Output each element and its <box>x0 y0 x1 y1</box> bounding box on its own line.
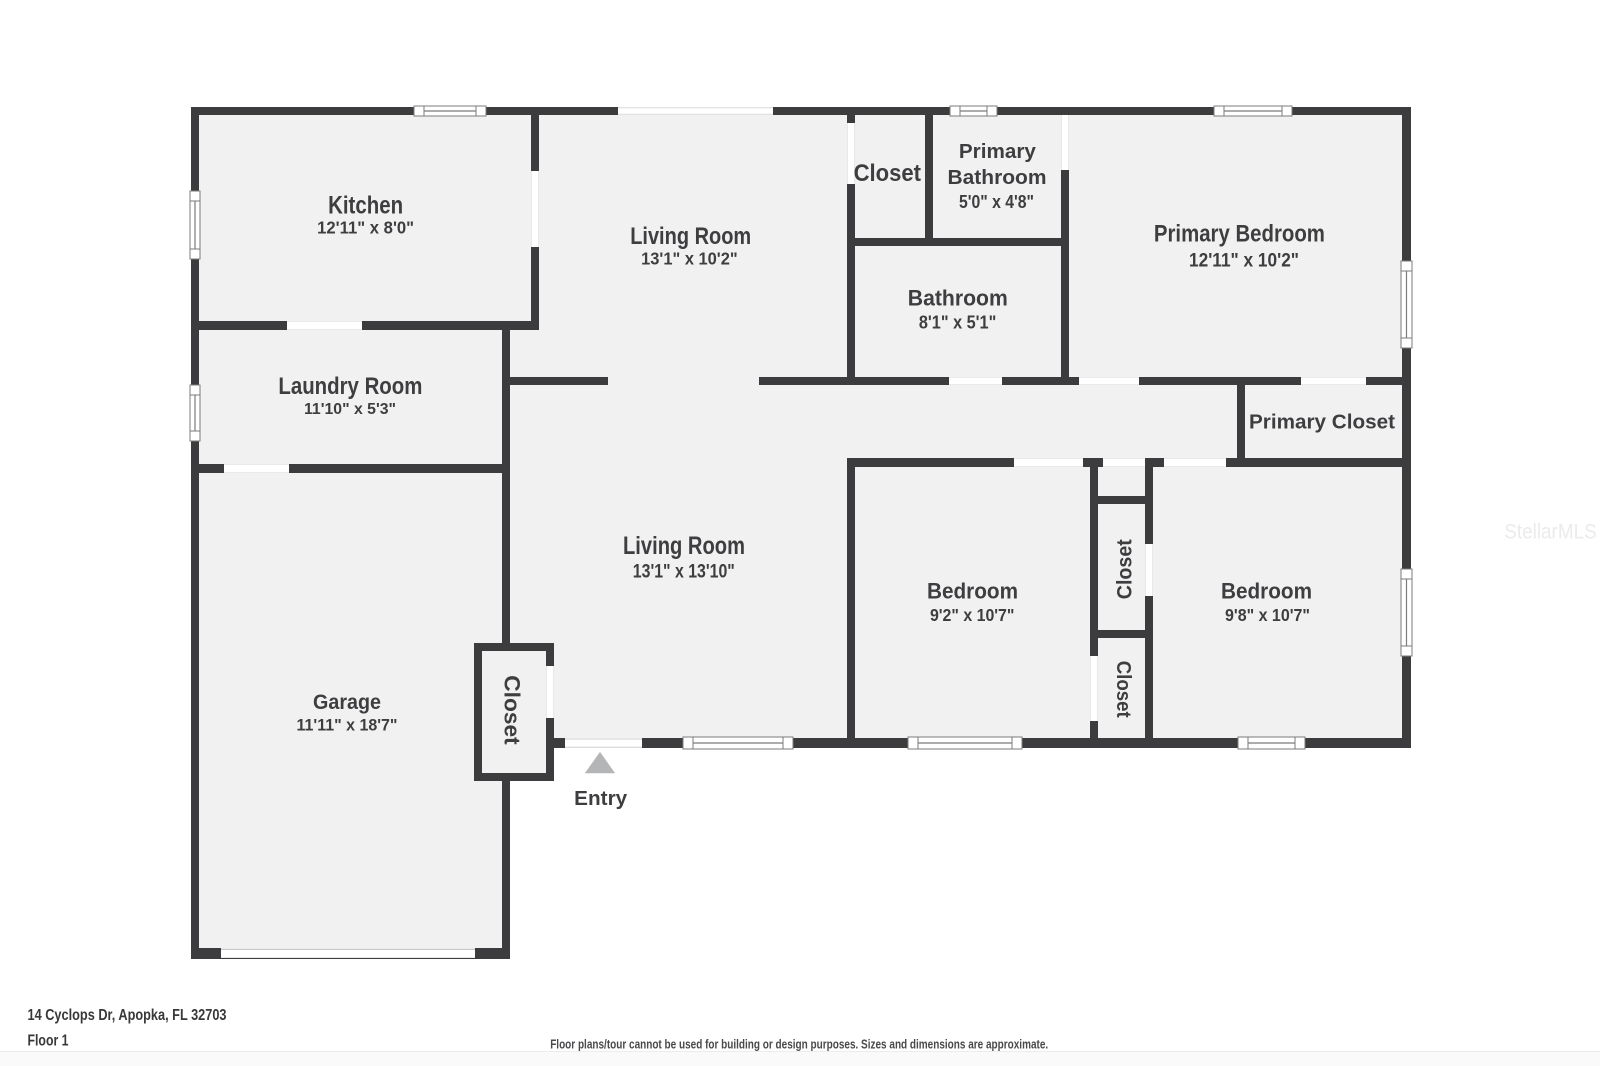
svg-text:Bedroom: Bedroom <box>927 579 1018 604</box>
svg-text:9'8" x 10'7": 9'8" x 10'7" <box>1225 605 1310 625</box>
svg-text:13'1" x 13'10": 13'1" x 13'10" <box>633 562 735 583</box>
svg-text:Living Room: Living Room <box>630 223 751 250</box>
svg-text:11'10" x 5'3": 11'10" x 5'3" <box>304 401 396 418</box>
svg-text:Garage: Garage <box>313 690 381 714</box>
svg-text:12'11" x 8'0": 12'11" x 8'0" <box>317 218 414 238</box>
svg-text:11'11" x 18'7": 11'11" x 18'7" <box>297 717 398 735</box>
svg-text:5'0" x 4'8": 5'0" x 4'8" <box>959 192 1034 212</box>
svg-text:14 Cyclops Dr, Apopka, FL 3270: 14 Cyclops Dr, Apopka, FL 32703 <box>28 1007 227 1024</box>
svg-text:Closet: Closet <box>854 160 921 187</box>
svg-text:Floor plans/tour cannot be use: Floor plans/tour cannot be used for buil… <box>550 1038 1048 1052</box>
svg-text:Primary Bedroom: Primary Bedroom <box>1154 221 1325 248</box>
svg-text:Laundry Room: Laundry Room <box>278 373 422 400</box>
svg-text:Bathroom: Bathroom <box>948 167 1047 189</box>
svg-text:12'11" x 10'2": 12'11" x 10'2" <box>1189 251 1299 272</box>
svg-text:Bedroom: Bedroom <box>1221 579 1312 604</box>
svg-text:Entry: Entry <box>574 788 628 810</box>
svg-text:Primary Closet: Primary Closet <box>1249 412 1395 434</box>
svg-text:8'1" x 5'1": 8'1" x 5'1" <box>919 313 996 333</box>
svg-text:Floor 1: Floor 1 <box>28 1033 69 1050</box>
svg-text:Bathroom: Bathroom <box>908 286 1008 311</box>
svg-text:13'1" x 10'2": 13'1" x 10'2" <box>641 249 738 269</box>
svg-text:Closet: Closet <box>1112 661 1134 718</box>
svg-text:Closet: Closet <box>1114 539 1137 599</box>
svg-text:9'2" x 10'7": 9'2" x 10'7" <box>930 605 1015 625</box>
svg-text:Living Room: Living Room <box>623 532 745 560</box>
svg-text:Kitchen: Kitchen <box>328 192 403 220</box>
svg-text:StellarMLS: StellarMLS <box>1504 521 1597 544</box>
svg-text:Closet: Closet <box>500 675 525 745</box>
svg-text:Primary: Primary <box>959 141 1037 163</box>
